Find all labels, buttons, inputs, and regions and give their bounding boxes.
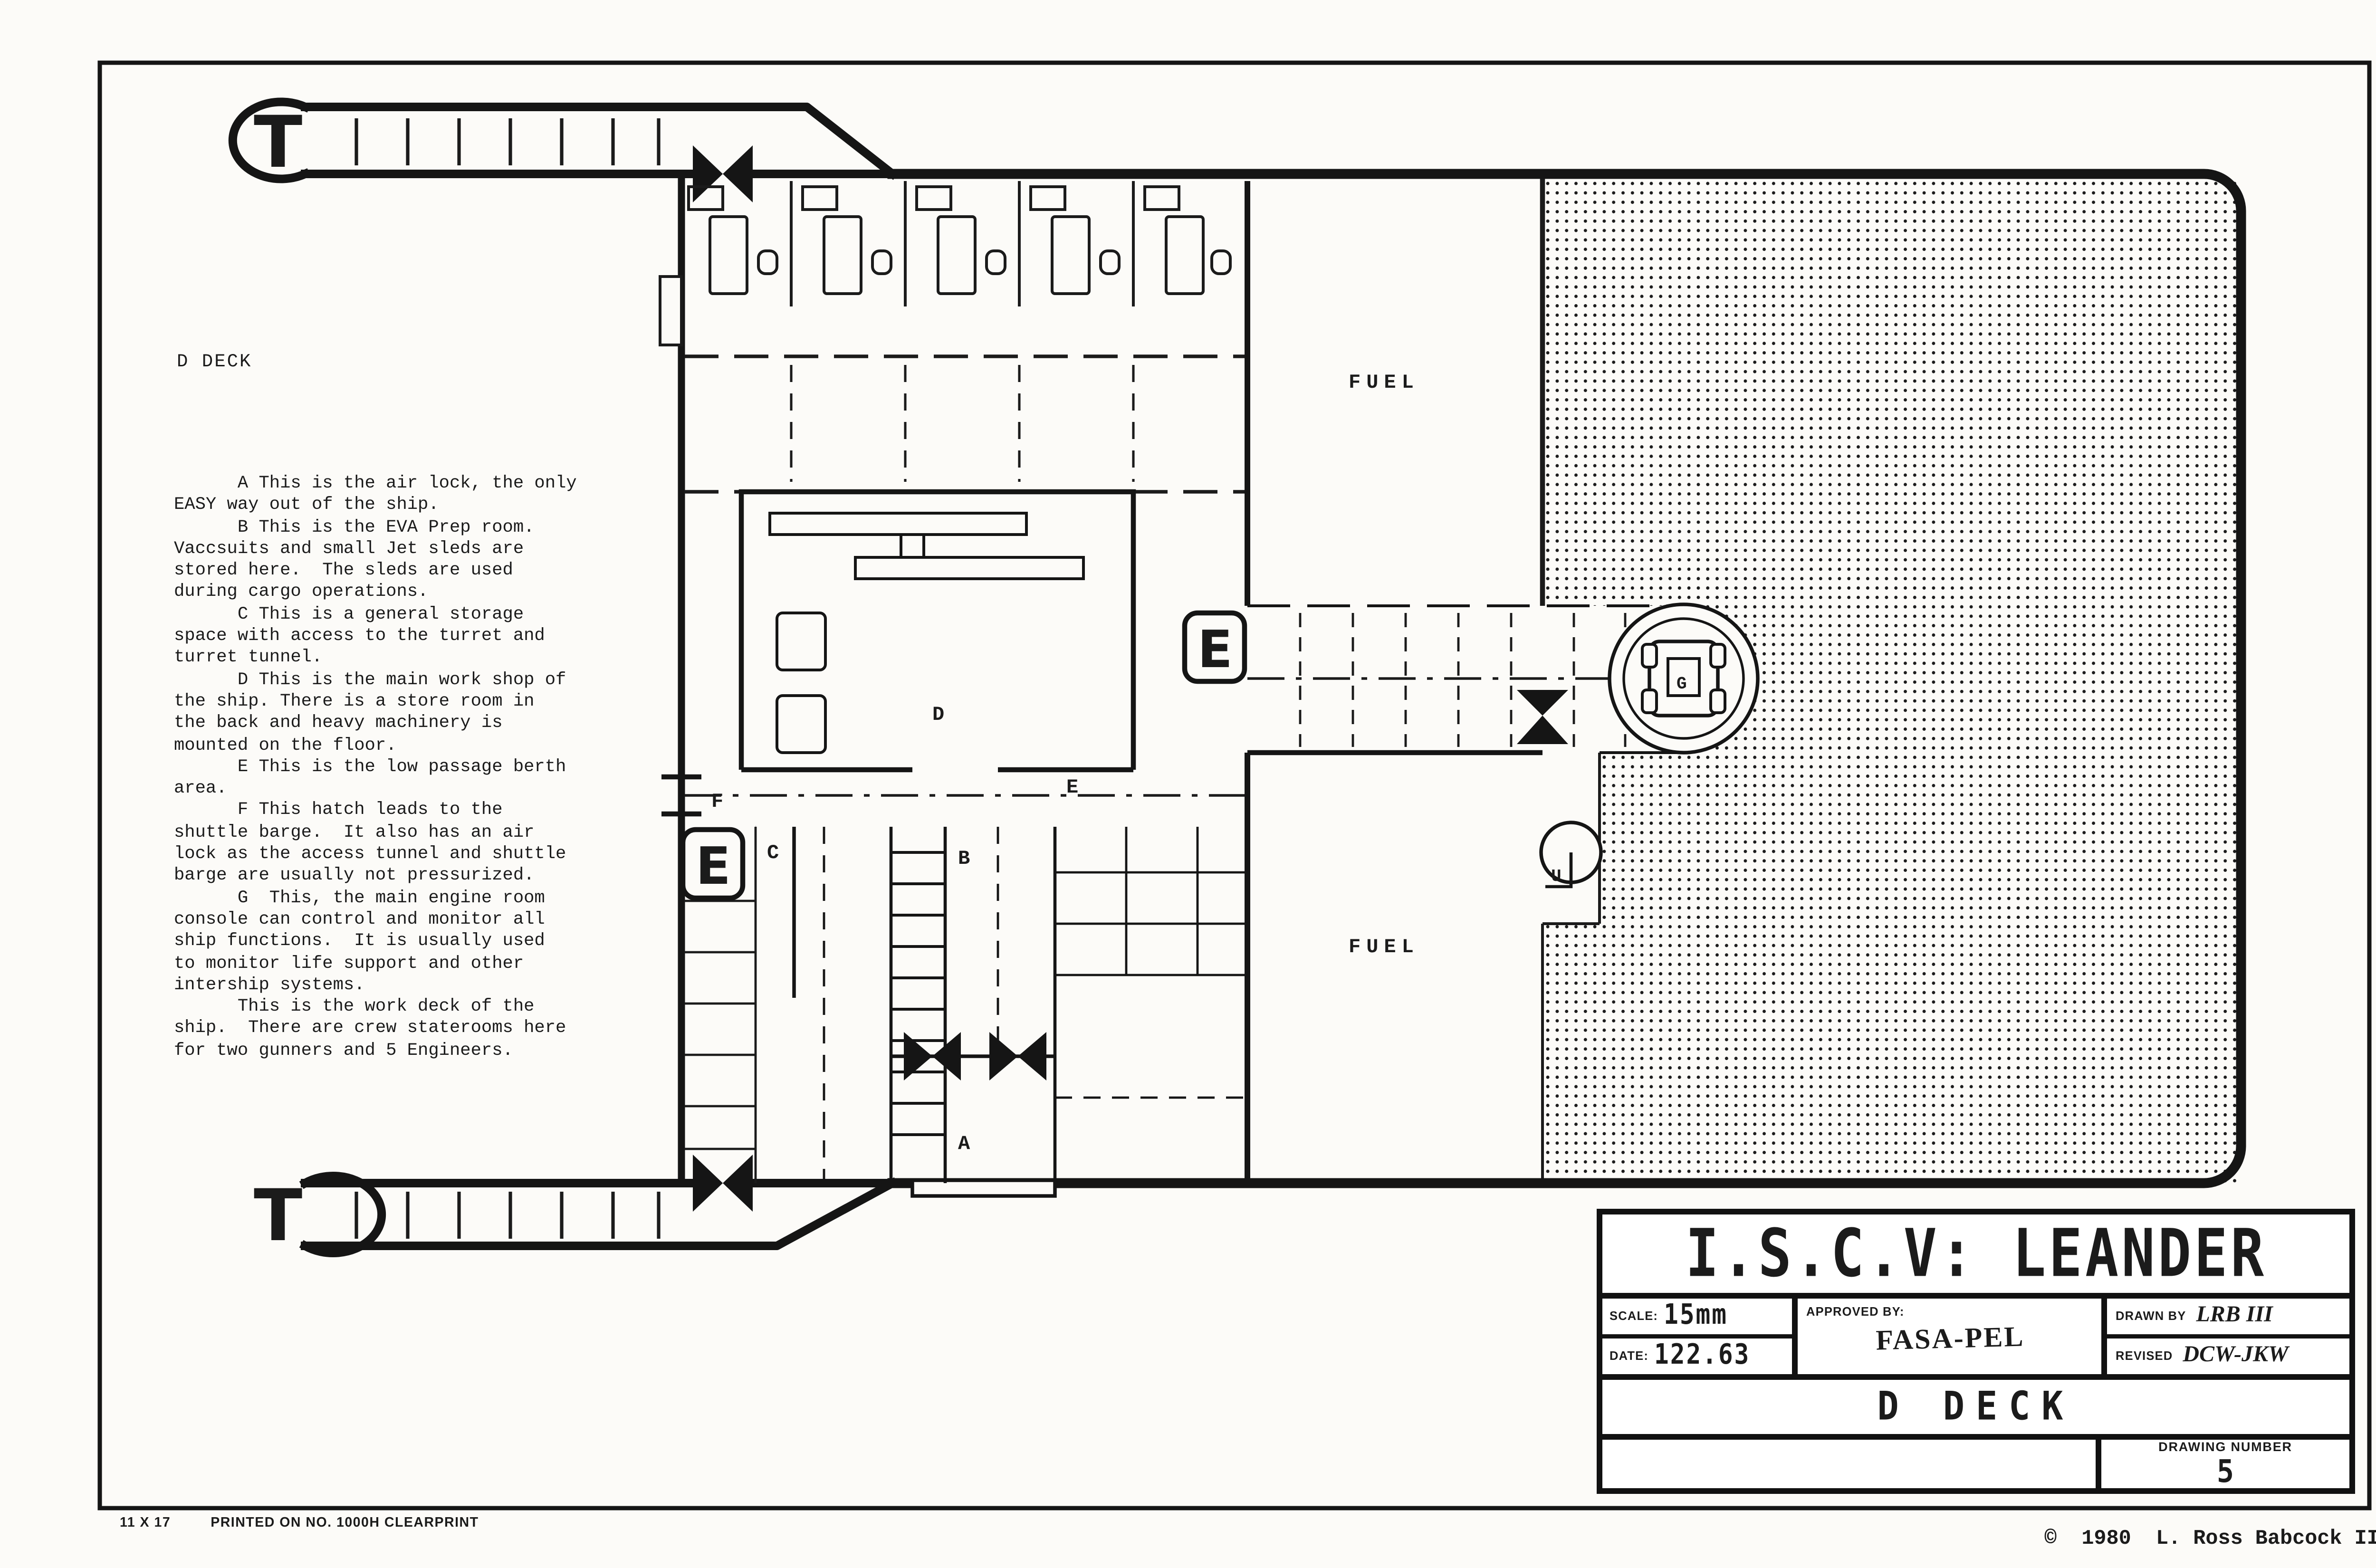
deck-name: D DECK xyxy=(1878,1384,2075,1430)
stateroom-walls xyxy=(689,181,1230,306)
eva-prep-label: B xyxy=(958,847,970,870)
turret-tunnel-ladder-bottom xyxy=(356,1192,659,1239)
corridor-grid-mid xyxy=(1247,613,1651,747)
ladder-up-icon xyxy=(1541,822,1601,887)
deck-grid-dashed xyxy=(684,356,1247,492)
title-block-title-row: I.S.C.V: LEANDER xyxy=(1602,1214,2349,1298)
revised-label: REVISED xyxy=(2116,1349,2173,1363)
blueprint-sheet: T T E E FUEL FUEL D E C B F A G U D DECK… xyxy=(0,0,2376,1568)
engine-console-label: G xyxy=(1677,674,1687,694)
turret-bottom-label: T xyxy=(254,1175,302,1257)
drawn-by-signature: LRB III xyxy=(2196,1303,2272,1329)
scale-date-cell: SCALE: 15mm DATE: 122.63 xyxy=(1602,1298,1792,1374)
ship-title: I.S.C.V: LEANDER xyxy=(1685,1215,2267,1292)
title-block-empty-cell xyxy=(1602,1440,2096,1488)
notes-heading: D DECK xyxy=(177,351,252,372)
scale-label: SCALE: xyxy=(1610,1309,1658,1323)
date-value: 122.63 xyxy=(1654,1339,1750,1372)
notes-body: A This is the air lock, the only EASY wa… xyxy=(174,473,577,1062)
approved-label: APPROVED BY: xyxy=(1806,1304,1905,1318)
drawing-number-value: 5 xyxy=(2217,1452,2234,1490)
revised-signature: DCW-JKW xyxy=(2183,1343,2288,1369)
approved-stamp: FASA-PEL xyxy=(1875,1322,2024,1359)
title-block: I.S.C.V: LEANDER SCALE: 15mm DATE: 122.6… xyxy=(1597,1209,2355,1494)
scale-value: 15mm xyxy=(1664,1300,1728,1332)
drawing-number-cell: DRAWING NUMBER 5 xyxy=(2096,1440,2349,1488)
airlock-exterior-hatch xyxy=(912,1180,1055,1196)
workshop-room xyxy=(741,492,1133,770)
sheet-footer-note: 11 X 17PRINTED ON NO. 1000H CLEARPRINT xyxy=(120,1515,479,1531)
airlock-label: A xyxy=(958,1132,970,1155)
fuel-upper-label: FUEL xyxy=(1349,371,1419,394)
berth-box-mid-label: E xyxy=(1198,620,1233,679)
turret-tunnel-ladder-top xyxy=(356,118,659,165)
approved-cell: APPROVED BY: FASA-PEL xyxy=(1792,1298,2101,1374)
drawn-revised-cell: DRAWN BY LRB III REVISED DCW-JKW xyxy=(2101,1298,2349,1374)
storage-label: C xyxy=(767,841,779,864)
hull-wall-fixture xyxy=(660,277,681,345)
turret-top-label: T xyxy=(254,101,302,184)
lower-block-walls xyxy=(756,827,1247,1183)
drawn-by-label: DRAWN BY xyxy=(2116,1309,2186,1323)
berth-box-left-label: E xyxy=(696,837,731,896)
date-label: DATE: xyxy=(1610,1349,1648,1363)
door-x-icon xyxy=(693,145,1568,1212)
ladder-up-label: U xyxy=(1551,867,1562,886)
sheet-size: 11 X 17 xyxy=(120,1515,171,1531)
workshop-label: D xyxy=(932,703,944,726)
shuttle-hatch-label: F xyxy=(711,790,723,813)
deck-name-row: D DECK xyxy=(1602,1374,2349,1434)
fuel-lower-label: FUEL xyxy=(1349,936,1419,958)
print-note: PRINTED ON NO. 1000H CLEARPRINT xyxy=(211,1515,479,1531)
berth-area-label: E xyxy=(1066,776,1078,799)
copyright-note: © 1980 L. Ross Babcock III xyxy=(2044,1528,2376,1551)
